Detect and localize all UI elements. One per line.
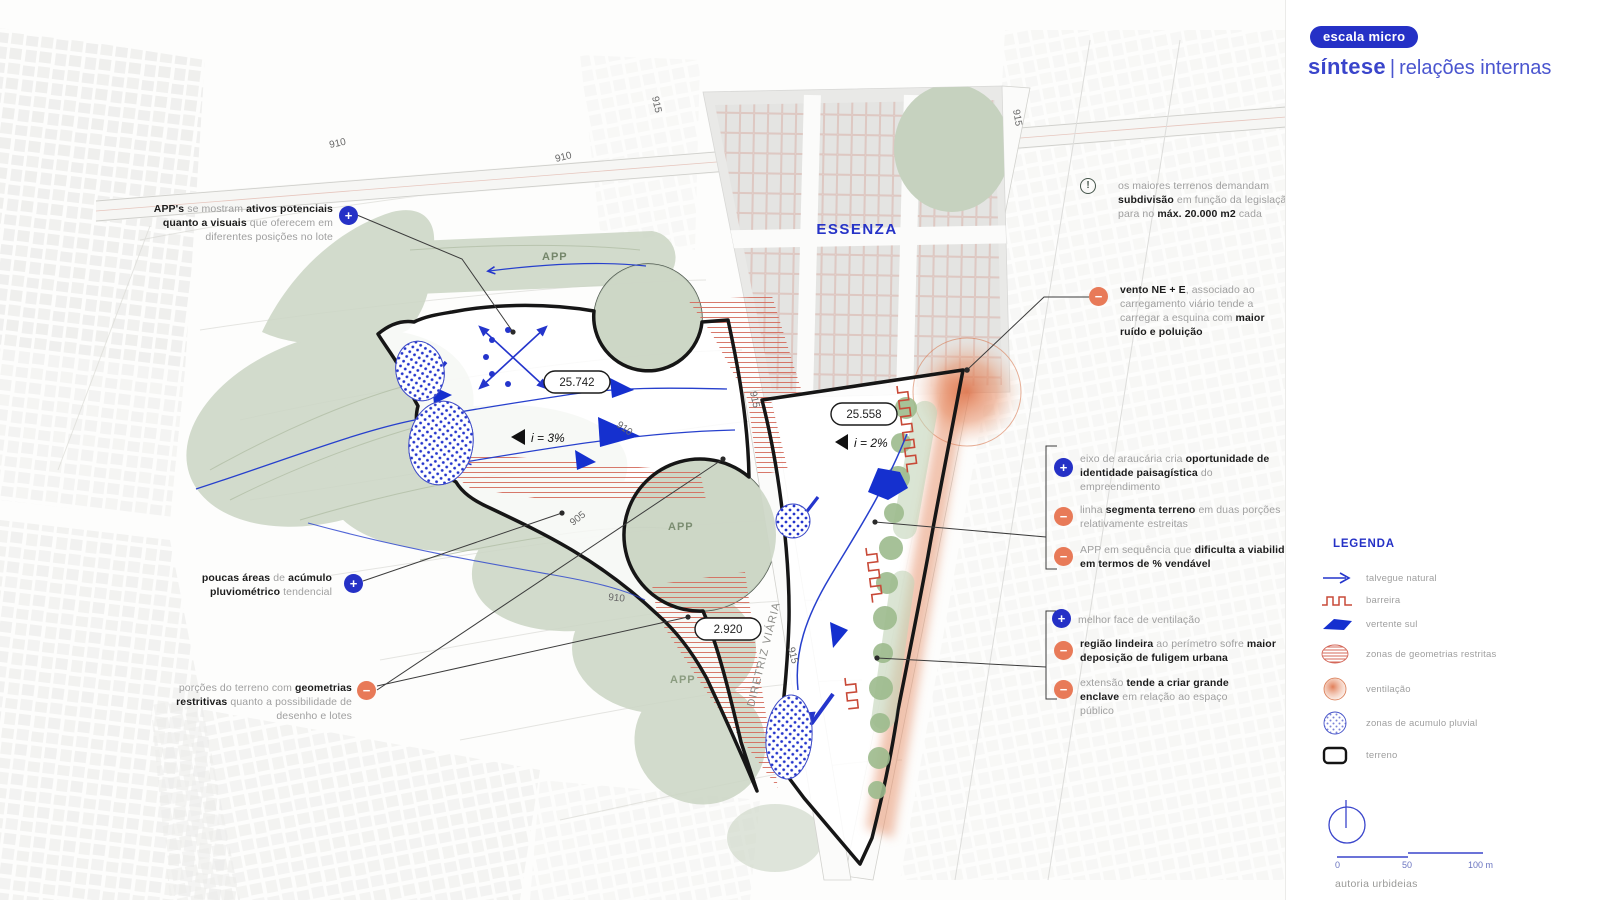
credit: autoria urbideias <box>1335 878 1418 890</box>
scale-50: 50 <box>1402 860 1412 870</box>
minus-icon: − <box>1089 287 1108 306</box>
legend-label: ventilação <box>1366 684 1411 695</box>
page-title: síntese|relações internas <box>1308 54 1551 80</box>
legend-heading: LEGENDA <box>1333 538 1395 550</box>
title-main: síntese <box>1308 54 1386 79</box>
plus-glyph: + <box>1058 612 1066 625</box>
annotation-app-visuais: APP's se mostram ativos potenciais quant… <box>150 202 333 244</box>
minus-icon: − <box>1054 641 1073 660</box>
legend-item-vertente: vertente sul <box>1320 615 1585 633</box>
minus-glyph: − <box>1060 510 1068 523</box>
legend-label: terreno <box>1366 750 1398 761</box>
ventilacao-icon <box>1320 676 1366 702</box>
app-label: APP <box>668 521 694 533</box>
acumulo-pluvial-icon <box>1320 710 1366 736</box>
alert-icon: ! <box>1080 178 1096 194</box>
minus-glyph: − <box>1060 644 1068 657</box>
barreira-icon <box>1320 592 1366 608</box>
app-label: APP <box>670 674 696 686</box>
annotation-acumulo: poucas áreas de acúmulo pluviométrico te… <box>172 571 332 599</box>
plus-glyph: + <box>345 209 353 222</box>
plus-icon: + <box>344 574 363 593</box>
annotation-ventilacao-face: melhor face de ventilação <box>1078 613 1253 627</box>
area-value: 25.742 <box>559 377 594 389</box>
minus-glyph: − <box>1060 683 1068 696</box>
legend-label: zonas de acumulo pluvial <box>1366 718 1477 729</box>
geometrias-restritas-icon <box>1320 642 1366 666</box>
minus-icon: − <box>1054 507 1073 526</box>
area-value: 25.558 <box>846 409 881 421</box>
annotation-linha: linha segmenta terreno em duas porções r… <box>1080 503 1295 531</box>
alert-glyph: ! <box>1086 181 1089 191</box>
slope-value: i = 3% <box>531 431 565 445</box>
scale-bar <box>1337 853 1483 857</box>
scale-tag-label: escala micro <box>1323 29 1405 44</box>
area-pill-right: 25.558 <box>831 403 897 425</box>
area-value: 2.920 <box>714 624 743 636</box>
legend-label: talvegue natural <box>1366 573 1437 584</box>
minus-icon: − <box>357 681 376 700</box>
area-pill-left: 25.742 <box>544 371 610 393</box>
annotation-geometrias: porções do terreno com geometrias restri… <box>152 681 352 723</box>
area-pill-tail: 2.920 <box>695 618 761 640</box>
plus-icon: + <box>1054 458 1073 477</box>
title-sub: relações internas <box>1399 57 1551 79</box>
slide: ESSENZA APP APP APP DIRETRIZ VIÁRIA 910 … <box>0 0 1599 900</box>
minus-glyph: − <box>1095 290 1103 303</box>
minus-icon: − <box>1054 680 1073 699</box>
minus-glyph: − <box>363 684 371 697</box>
plus-glyph: + <box>1060 461 1068 474</box>
legend-item-talvegue: talvegue natural <box>1320 570 1585 586</box>
essenza-label: ESSENZA <box>816 221 897 238</box>
annotation-enclave: extensão tende a criar grande enclave em… <box>1080 676 1250 718</box>
plus-glyph: + <box>350 577 358 590</box>
scale-tag: escala micro <box>1310 26 1418 48</box>
legend-item-ventilacao: ventilação <box>1320 676 1585 702</box>
annotation-eixo: eixo de araucária cria oportunidade de i… <box>1080 452 1285 494</box>
north-arrow-icon <box>1329 800 1365 843</box>
annotation-app-sequencia: APP em sequência que dificulta a viabili… <box>1080 543 1308 571</box>
north-and-scale: 0 50 100 m <box>1290 762 1590 882</box>
scale-0: 0 <box>1335 860 1340 870</box>
plus-icon: + <box>339 206 358 225</box>
minus-icon: − <box>1054 547 1073 566</box>
legend-item-geometrias: zonas de geometrias restritas <box>1320 642 1585 666</box>
slope-value: i = 2% <box>854 436 888 450</box>
legend-item-pluvial: zonas de acumulo pluvial <box>1320 710 1585 736</box>
legend-label: zonas de geometrias restritas <box>1366 649 1496 660</box>
vertente-sul-icon <box>1320 615 1366 633</box>
contour-label: 910 <box>608 592 626 605</box>
annotation-lindeira: região lindeira ao perímetro sofre maior… <box>1080 637 1285 665</box>
annotation-subdivisao: os maiores terrenos demandam subdivisão … <box>1118 179 1293 221</box>
minus-glyph: − <box>1060 550 1068 563</box>
legend: talvegue natural barreira vertente sul z… <box>1320 570 1585 766</box>
talvegue-icon <box>1320 570 1366 586</box>
legend-label: vertente sul <box>1366 619 1418 630</box>
annotation-vento: vento NE + E, associado ao carregamento … <box>1120 283 1268 339</box>
plus-icon: + <box>1052 609 1071 628</box>
legend-label: barreira <box>1366 595 1400 606</box>
title-separator: | <box>1386 57 1399 79</box>
app-label: APP <box>542 251 568 263</box>
site-plan-map: ESSENZA APP APP APP DIRETRIZ VIÁRIA 910 … <box>0 0 1286 900</box>
legend-item-barreira: barreira <box>1320 592 1585 608</box>
scale-100: 100 m <box>1468 860 1493 870</box>
